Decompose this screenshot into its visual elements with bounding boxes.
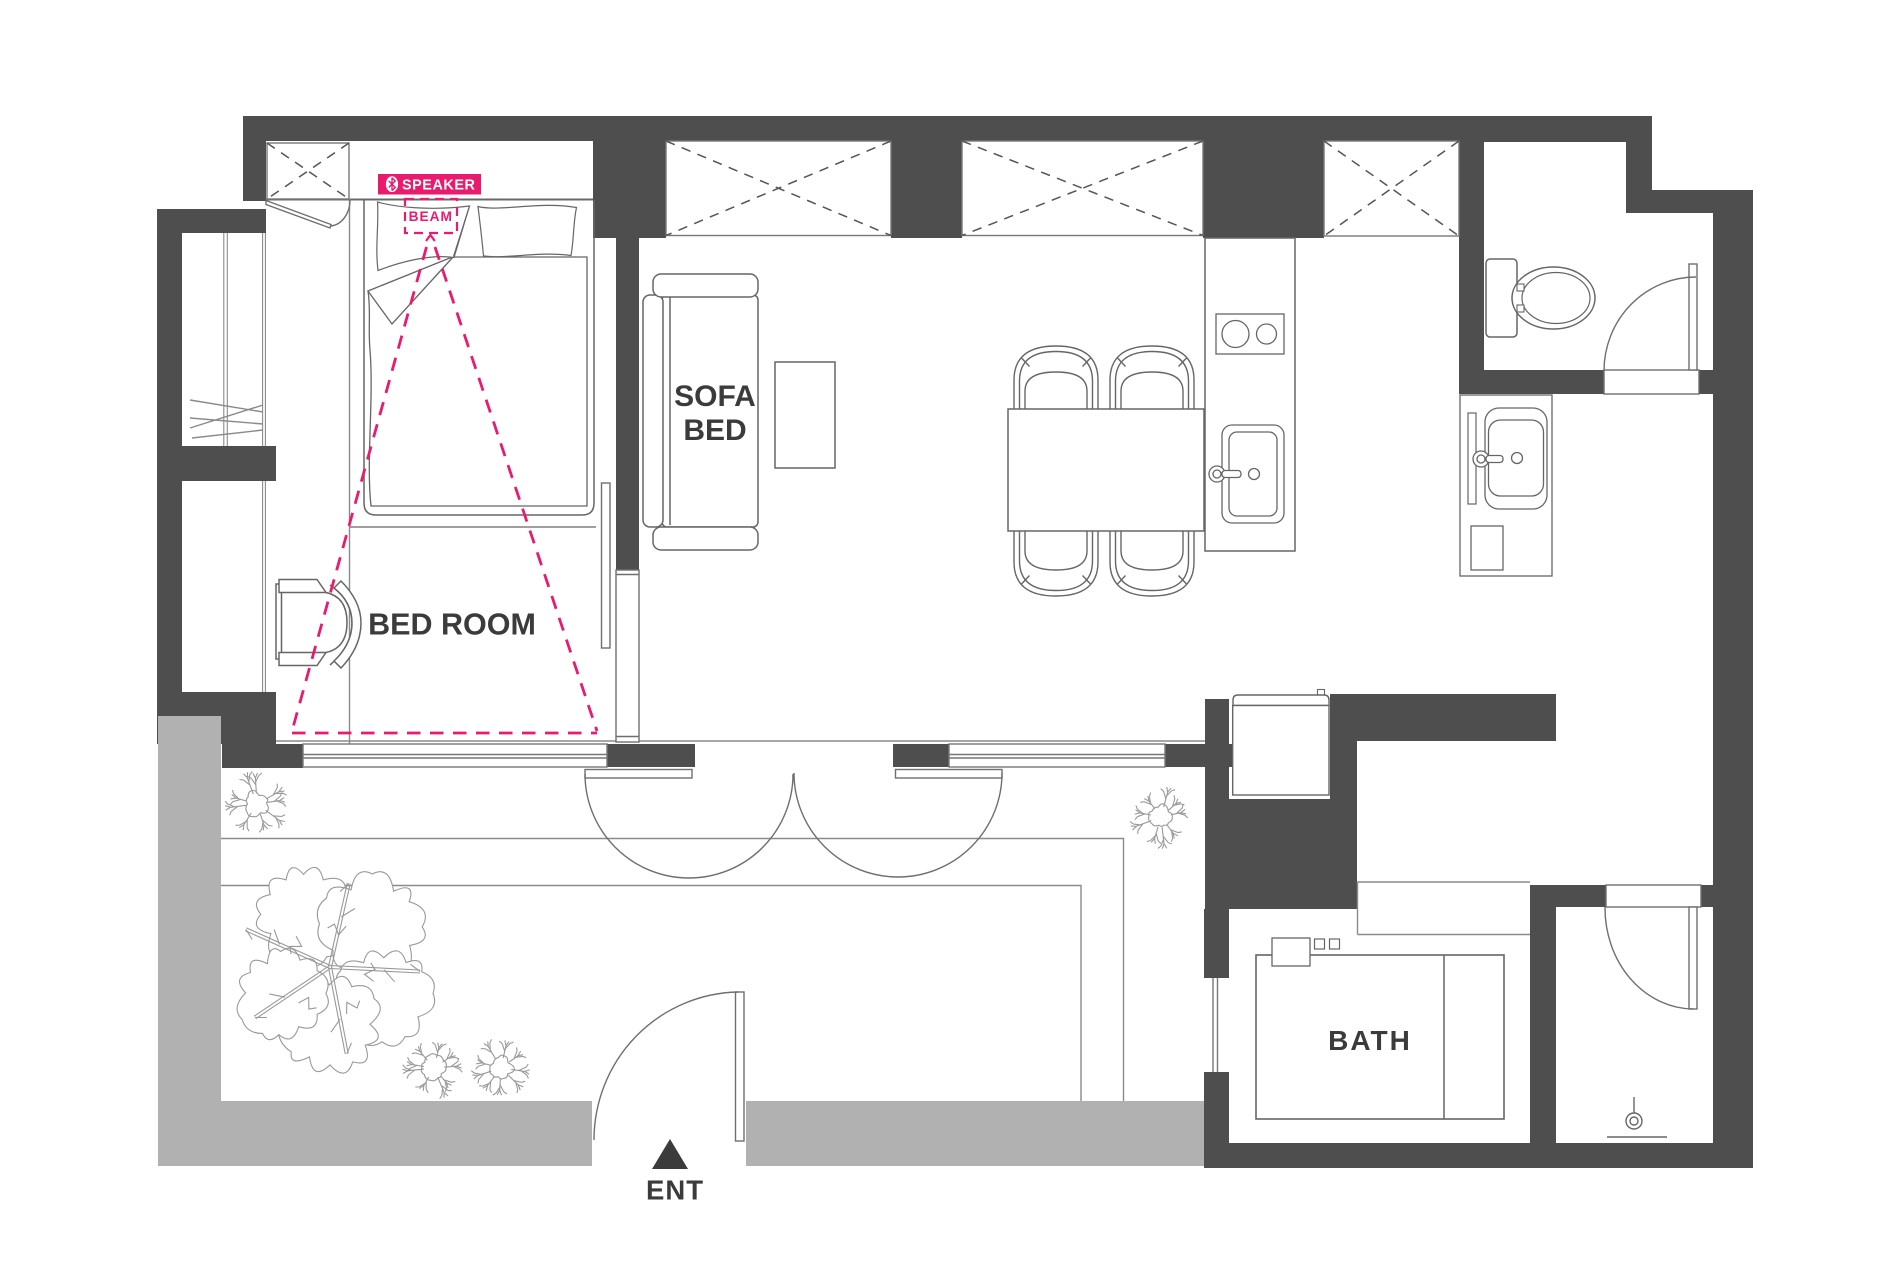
svg-text:BED: BED	[683, 414, 746, 447]
svg-text:BED ROOM: BED ROOM	[368, 608, 536, 642]
svg-text:BEAM: BEAM	[409, 209, 453, 224]
svg-text:SOFA: SOFA	[674, 380, 756, 413]
svg-text:ENT: ENT	[646, 1175, 704, 1206]
svg-text:BATH: BATH	[1328, 1025, 1412, 1056]
svg-text:SPEAKER: SPEAKER	[402, 178, 475, 194]
